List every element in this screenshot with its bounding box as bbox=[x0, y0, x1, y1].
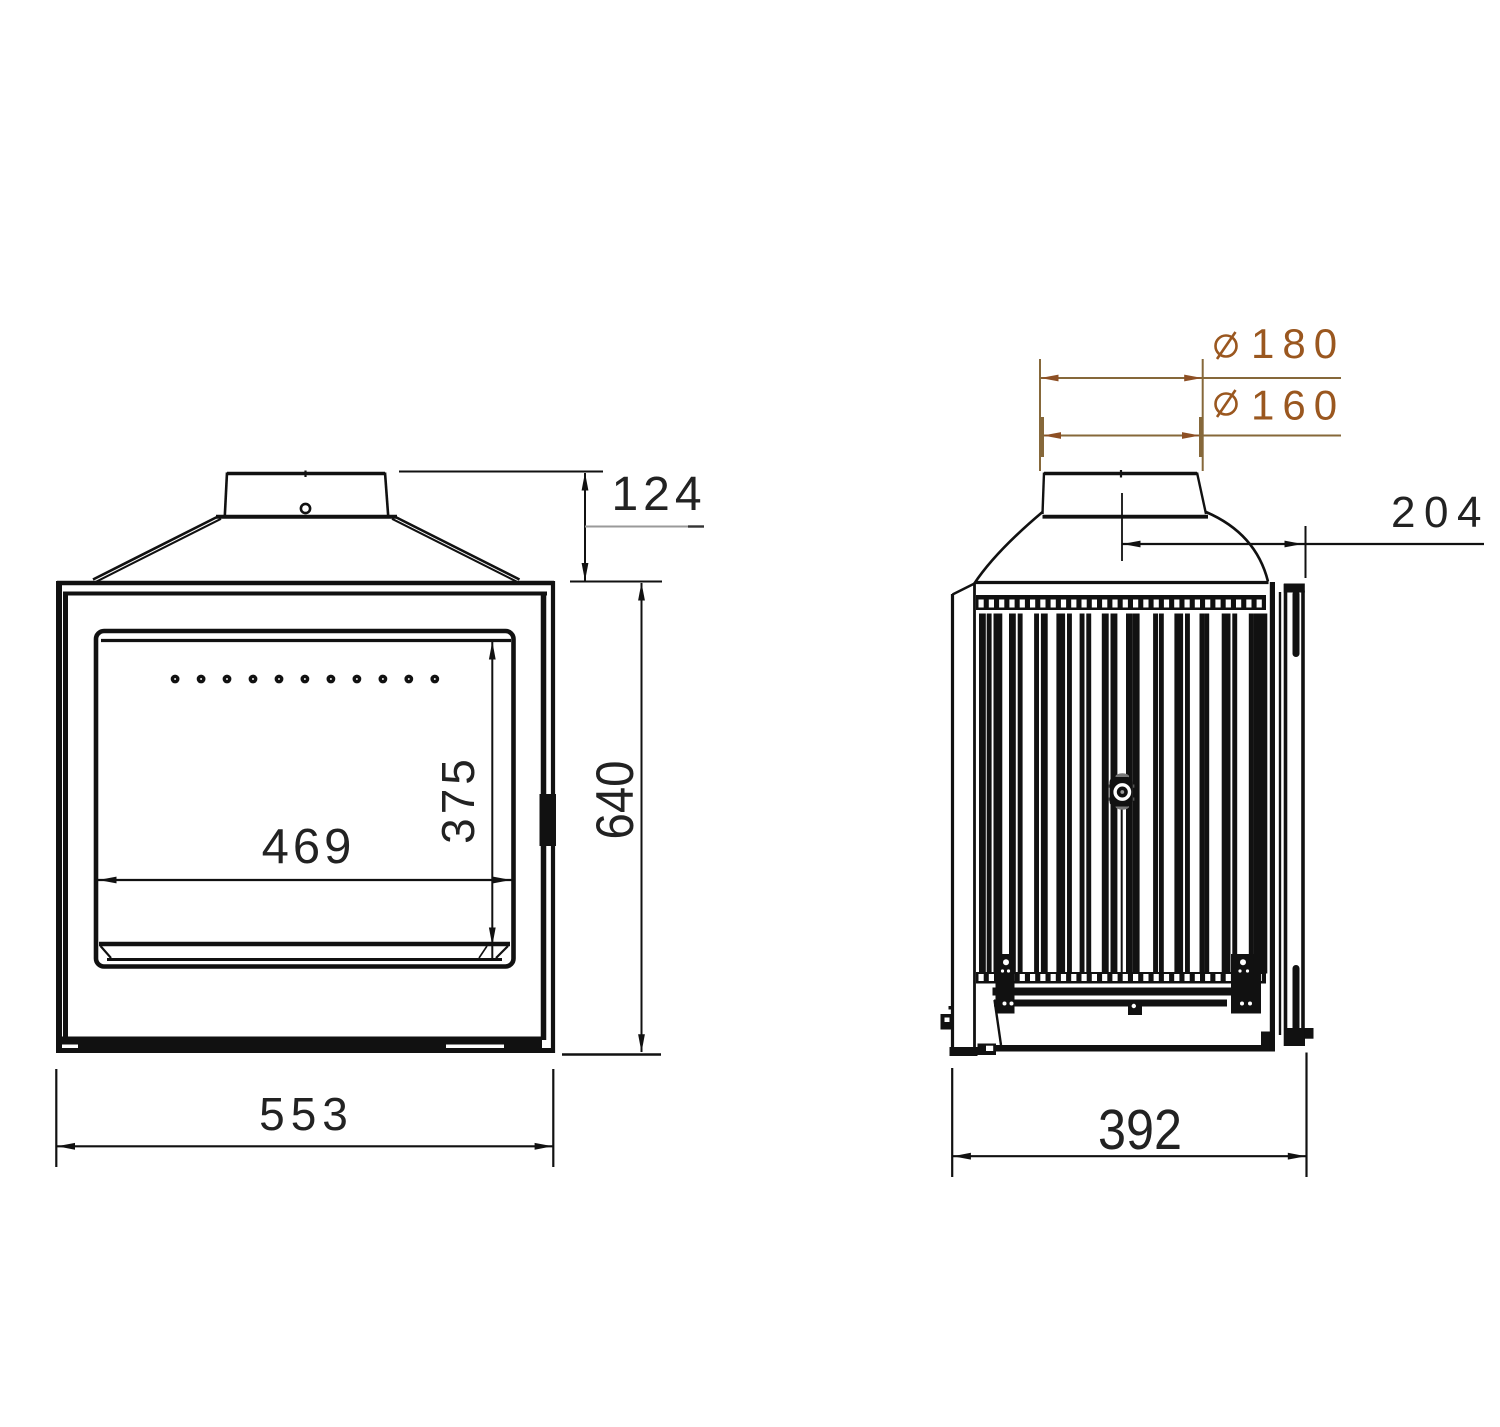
svg-text:640: 640 bbox=[586, 761, 645, 840]
svg-text:160: 160 bbox=[1251, 382, 1345, 429]
svg-text:204: 204 bbox=[1391, 488, 1490, 537]
svg-text:375: 375 bbox=[432, 755, 484, 844]
svg-text:469: 469 bbox=[262, 820, 356, 874]
svg-text:553: 553 bbox=[259, 1088, 354, 1140]
svg-text:180: 180 bbox=[1251, 320, 1345, 367]
svg-text:124: 124 bbox=[611, 468, 706, 521]
svg-text:392: 392 bbox=[1098, 1098, 1182, 1162]
